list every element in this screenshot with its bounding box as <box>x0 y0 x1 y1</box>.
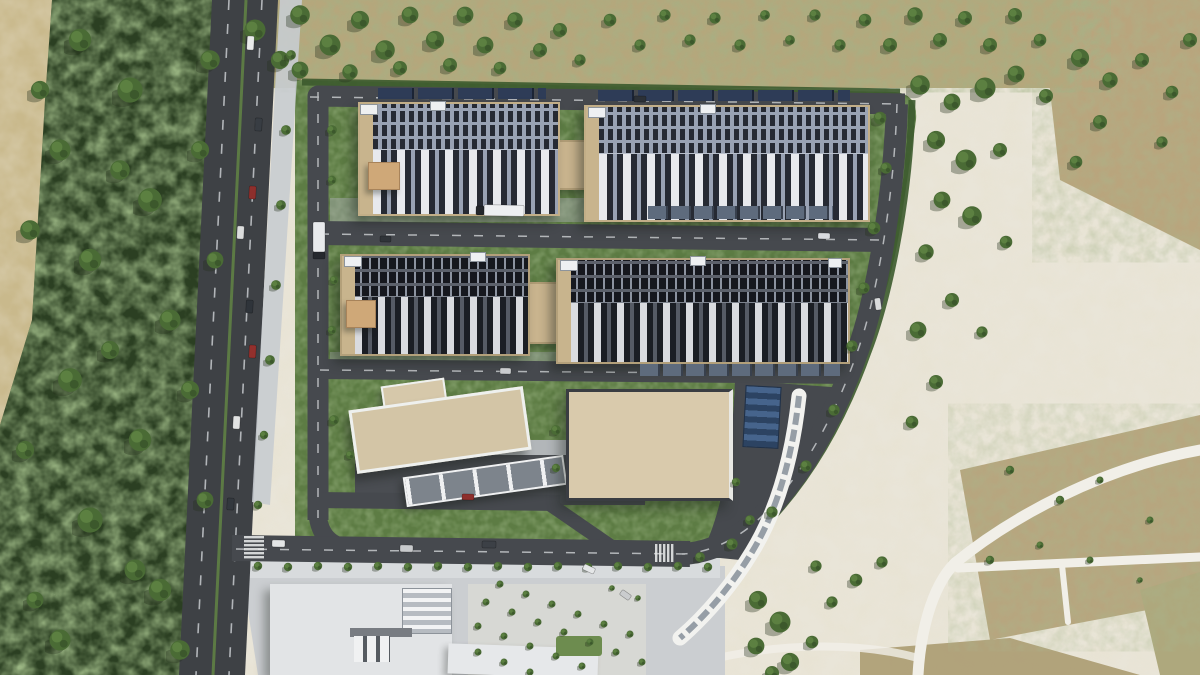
south-pavement <box>240 558 725 675</box>
terrain-and-roads <box>0 0 1200 675</box>
aerial-render-stage <box>0 0 1200 675</box>
tree-plaza <box>468 584 646 675</box>
scrubland-north <box>250 0 1070 88</box>
